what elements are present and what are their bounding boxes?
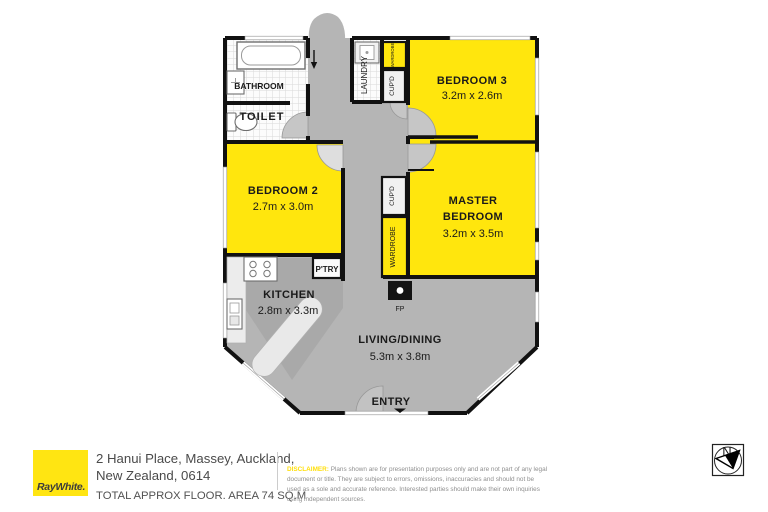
bedroom3-dims: 3.2m x 2.6m [442, 90, 503, 102]
entry-label: ENTRY [372, 396, 411, 408]
living-dining-label: LIVING/DINING [358, 334, 441, 346]
stove [244, 257, 277, 281]
master-bedroom-dims: 3.2m x 3.5m [443, 228, 504, 240]
bedroom2-label: BEDROOM 2 [248, 185, 318, 197]
footer-divider [277, 452, 278, 490]
master-bedroom-label-1: MASTER [449, 195, 498, 207]
kitchen-dims: 2.8m x 3.3m [258, 305, 319, 317]
disclaimer-label: DISCLAIMER: [287, 466, 329, 473]
raywhite-brand-text: RayWhite. [37, 481, 85, 493]
wardrobe-top-label: WARDROBE [390, 43, 395, 68]
kitchen-sink [227, 299, 242, 329]
bedroom3-label: BEDROOM 3 [437, 75, 507, 87]
living-dining-dims: 5.3m x 3.8m [370, 351, 431, 363]
north-compass-icon: N [709, 441, 747, 479]
address-line-1: 2 Hanui Place, Massey, Auckland, [96, 450, 306, 467]
bathtub [237, 42, 305, 69]
floorplan-drawing: BATHROOM TOILET LAUNDRY CUP'D WARDROBE B… [0, 0, 768, 438]
fireplace [388, 281, 412, 300]
raywhite-logo: RayWhite. [33, 450, 88, 496]
wardrobe-mid-label: WARDROBE [390, 226, 397, 267]
bathroom-label: BATHROOM [234, 81, 283, 91]
floor-area-text: TOTAL APPROX FLOOR. AREA 74 SQ.M [96, 490, 306, 502]
toilet-label: TOILET [240, 111, 285, 123]
kitchen-label: KITCHEN [263, 289, 315, 301]
floorplan-page: BATHROOM TOILET LAUNDRY CUP'D WARDROBE B… [0, 0, 768, 512]
master-bedroom-label-2: BEDROOM [443, 211, 503, 223]
laundry-label: LAUNDRY [360, 55, 369, 94]
fireplace-label: FP [396, 306, 405, 313]
address-block: 2 Hanui Place, Massey, Auckland, New Zea… [96, 450, 306, 502]
bedroom2-dims: 2.7m x 3.0m [253, 201, 314, 213]
footer: RayWhite. 2 Hanui Place, Massey, Aucklan… [0, 438, 768, 512]
disclaimer: DISCLAIMER: Plans shown are for presenta… [287, 465, 549, 505]
cupboard-mid-label: CUP'D [389, 186, 396, 206]
pantry-label: P'TRY [316, 265, 340, 274]
cupboard-top-label: CUP'D [389, 76, 396, 96]
address-line-2: New Zealand, 0614 [96, 467, 306, 484]
